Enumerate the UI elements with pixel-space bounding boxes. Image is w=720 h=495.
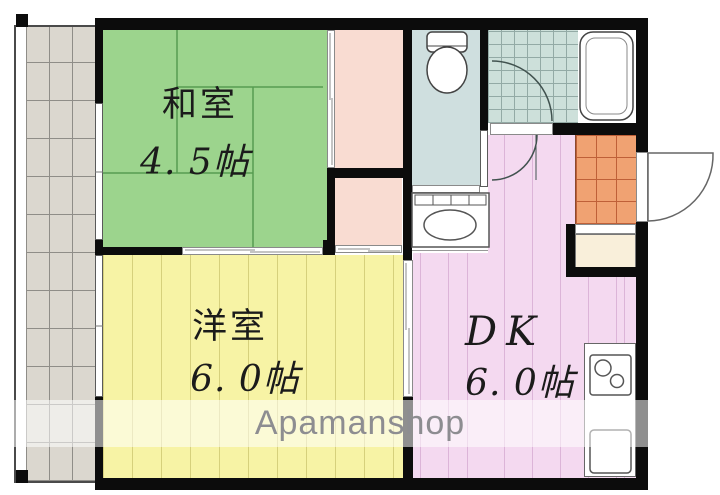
bathtub-icon — [580, 32, 633, 120]
dk-size: 6. 0帖 — [430, 366, 610, 402]
tatami-lines — [103, 30, 323, 247]
bath-door-arc — [492, 61, 552, 121]
yoshitsu-size: 6. 0帖 — [155, 362, 335, 398]
watermark-band: Apamanshop — [0, 400, 720, 447]
toilet-icon — [427, 32, 467, 93]
watermark-text: Apamanshop — [255, 404, 465, 443]
entrance-door-swing — [648, 153, 713, 221]
washitsu-label: 和室 — [120, 88, 280, 123]
yoshitsu-label: 洋室 — [150, 310, 310, 345]
washitsu-size: 4. 5帖 — [105, 145, 285, 181]
dk-door-arc — [492, 135, 537, 180]
washbasin-icon — [412, 193, 489, 247]
door-arcs — [492, 61, 552, 180]
floorplan: 和室 4. 5帖 洋室 6. 0帖 DK 6. 0帖 Apamanshop — [0, 0, 720, 495]
dk-label: DK — [440, 312, 570, 352]
